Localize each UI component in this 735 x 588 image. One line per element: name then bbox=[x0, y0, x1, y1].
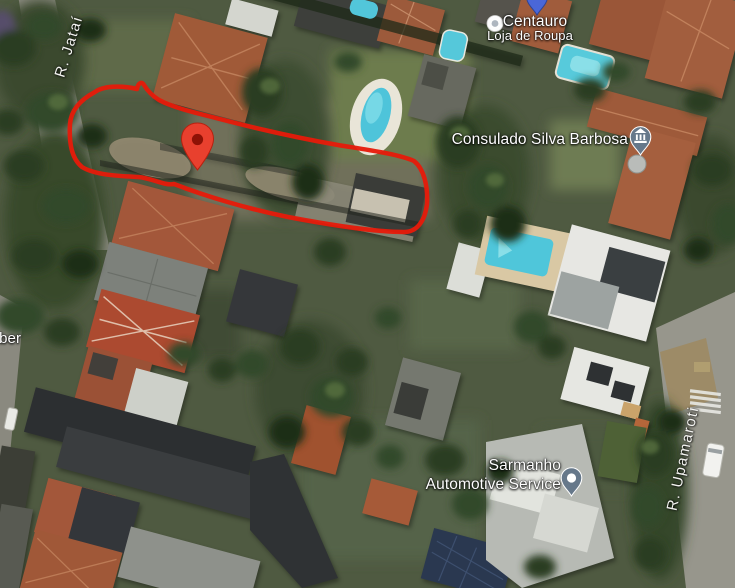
poi-label-sarmanho-line2: Automotive Service bbox=[426, 476, 561, 493]
poi-label-sarmanho[interactable]: Sarmanho Automotive Service bbox=[420, 456, 561, 494]
satellite-imagery bbox=[0, 0, 735, 588]
poi-label-centauro-subtitle[interactable]: Loja de Roupa bbox=[487, 28, 573, 43]
water-tank bbox=[628, 155, 646, 173]
poi-label-partial-left-edge[interactable]: rber bbox=[0, 330, 21, 348]
map-canvas[interactable]: Centauro Loja de Roupa Consulado Silva B… bbox=[0, 0, 735, 588]
poi-label-consulado[interactable]: Consulado Silva Barbosa bbox=[436, 131, 628, 149]
poi-label-sarmanho-line1: Sarmanho bbox=[489, 457, 561, 474]
swimming-pool bbox=[438, 29, 468, 63]
